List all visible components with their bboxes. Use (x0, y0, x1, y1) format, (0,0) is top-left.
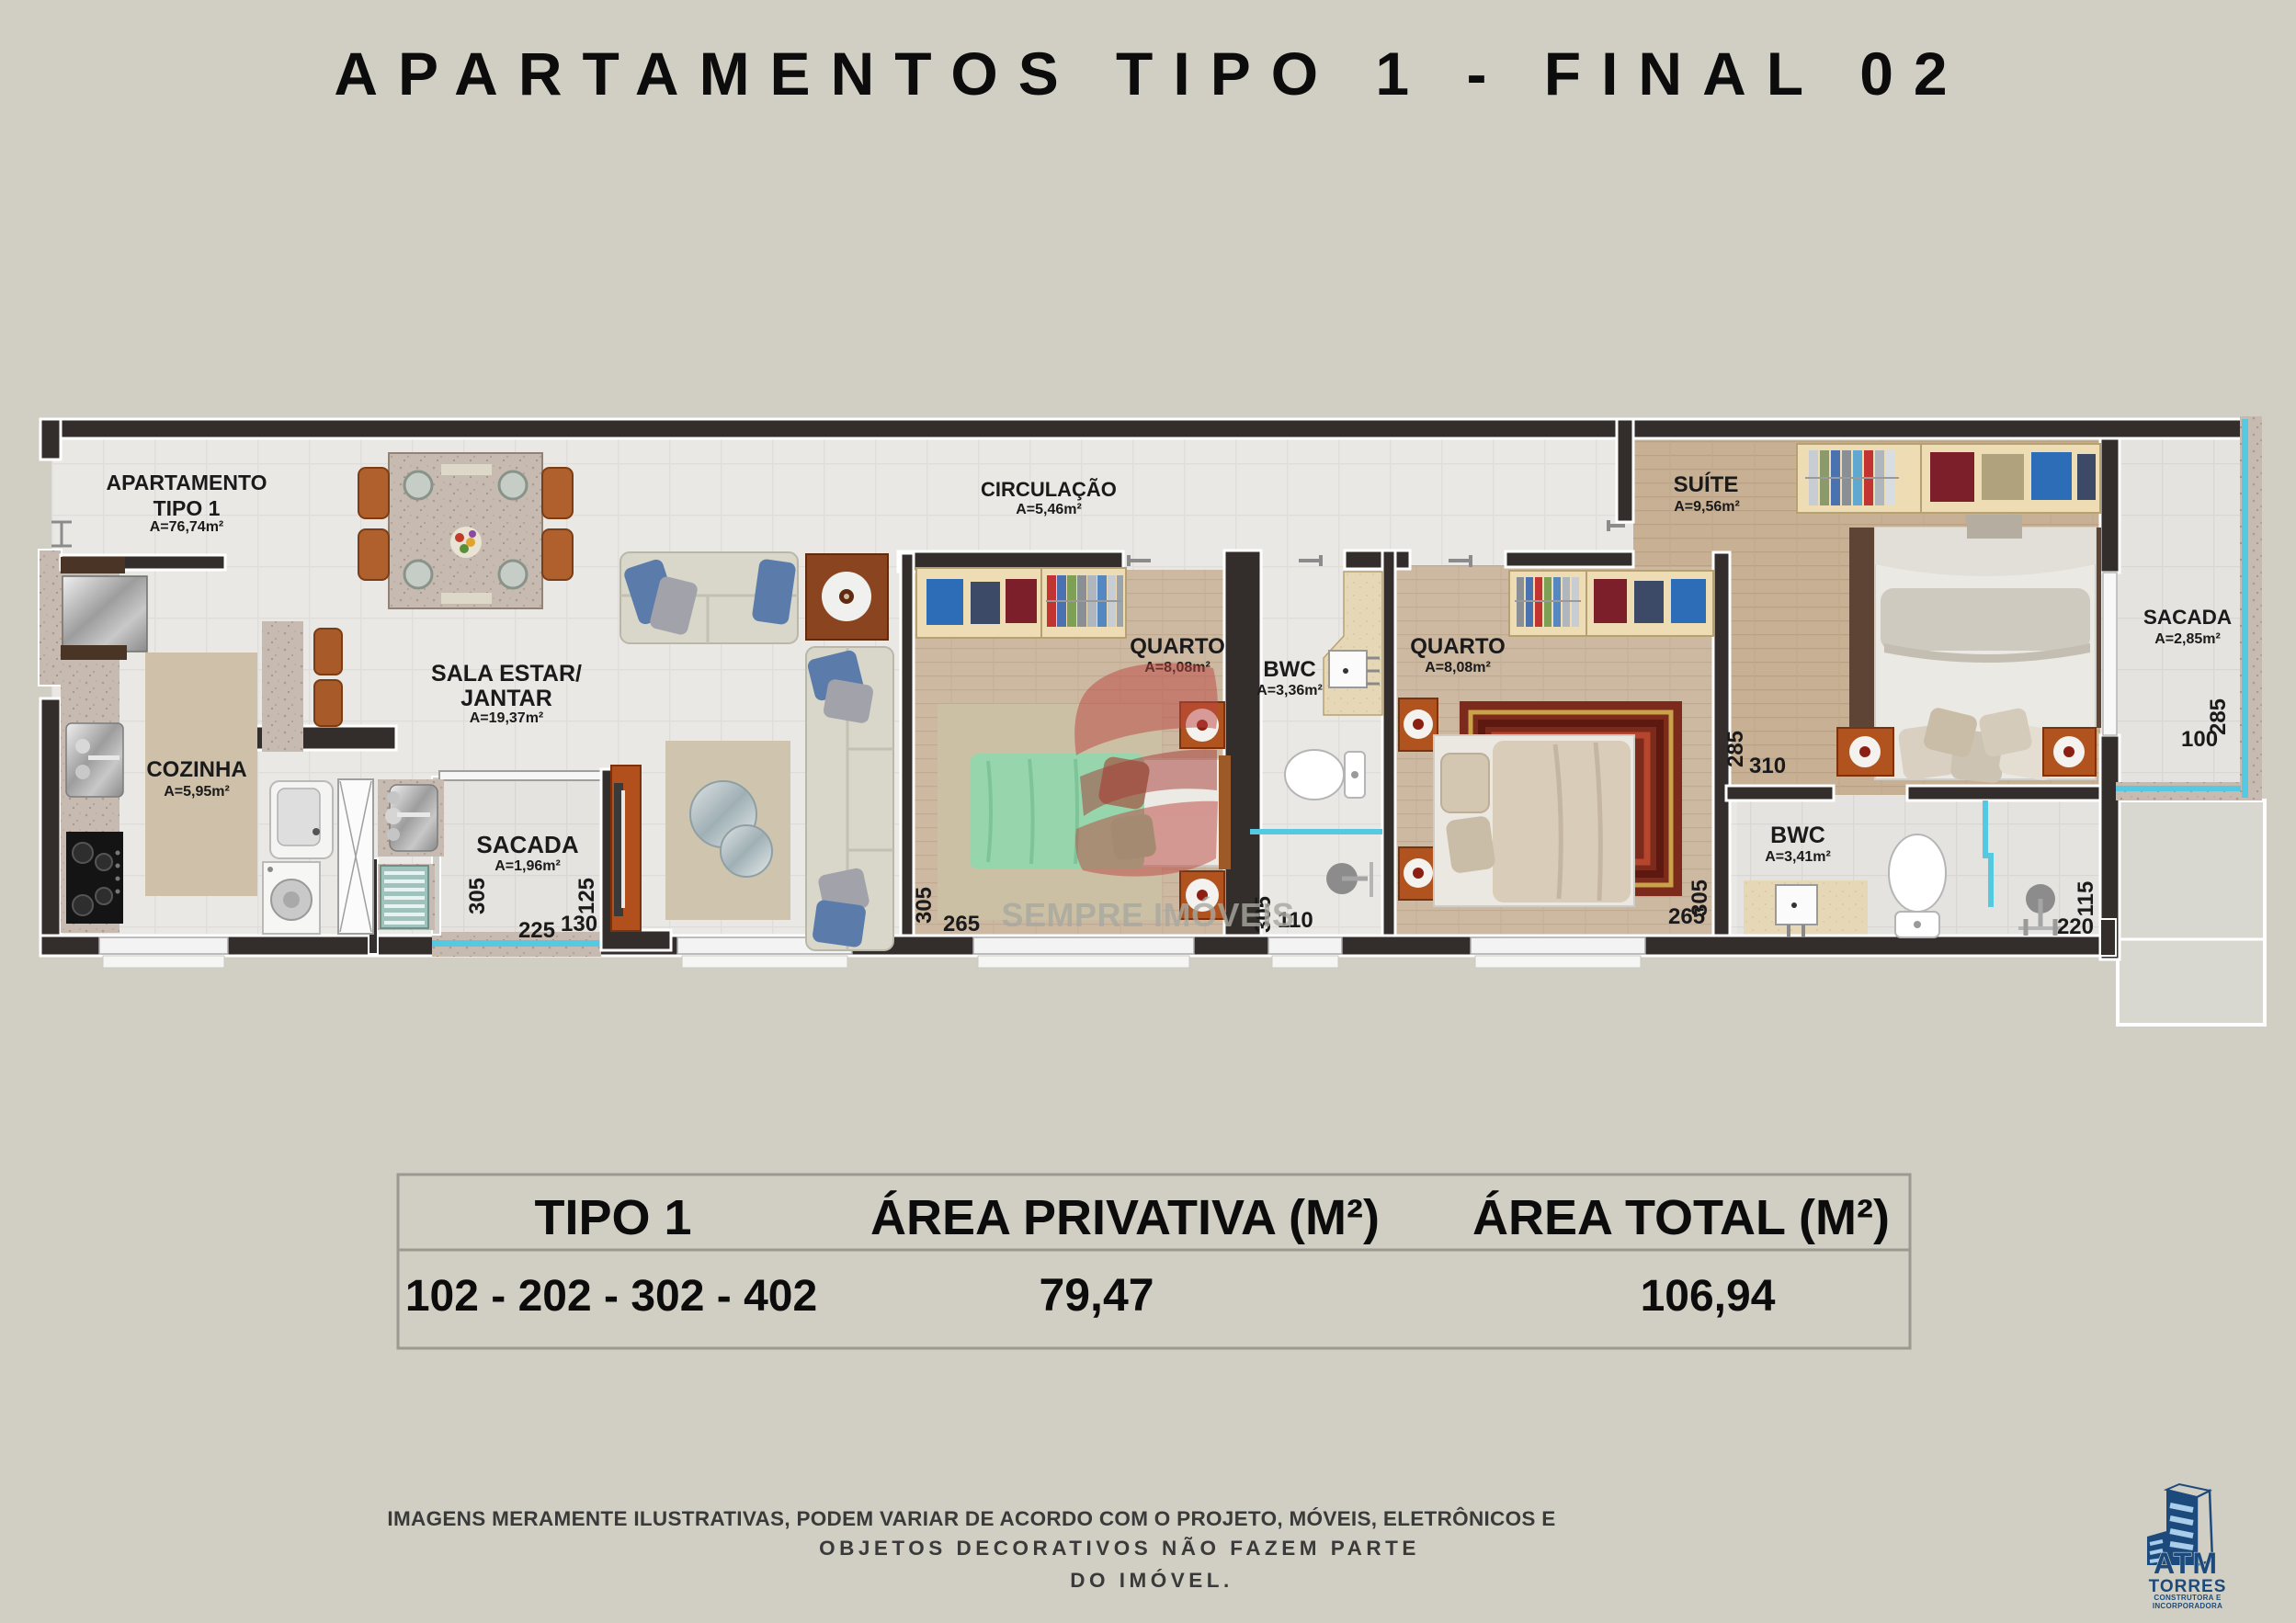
svg-text:BWC: BWC (1770, 823, 1825, 848)
svg-text:SALA ESTAR/: SALA ESTAR/ (431, 661, 582, 687)
svg-text:APARTAMENTOS TIPO 1 - FINAL 02: APARTAMENTOS TIPO 1 - FINAL 02 (334, 40, 1967, 108)
svg-text:102 - 202 - 302 - 402: 102 - 202 - 302 - 402 (405, 1272, 817, 1321)
svg-text:220: 220 (2057, 914, 2094, 939)
svg-text:INCORPORADORA: INCORPORADORA (2153, 1602, 2222, 1610)
svg-text:CONSTRUTORA E: CONSTRUTORA E (2154, 1594, 2222, 1602)
svg-text:QUARTO: QUARTO (1410, 634, 1506, 659)
svg-text:CIRCULAÇÃO: CIRCULAÇÃO (981, 478, 1117, 501)
svg-text:JANTAR: JANTAR (460, 686, 552, 711)
svg-text:SUÍTE: SUÍTE (1674, 471, 1739, 497)
svg-text:106,94: 106,94 (1641, 1272, 1776, 1321)
svg-text:QUARTO: QUARTO (1130, 634, 1225, 659)
svg-text:IMAGENS MERAMENTE ILUSTRATIVAS: IMAGENS MERAMENTE ILUSTRATIVAS, PODEM VA… (387, 1507, 1555, 1530)
svg-text:A=8,08m²: A=8,08m² (1425, 660, 1491, 675)
svg-text:BWC: BWC (1263, 657, 1315, 682)
svg-text:79,47: 79,47 (1039, 1269, 1154, 1321)
svg-text:310: 310 (1749, 754, 1786, 778)
svg-text:A=5,95m²: A=5,95m² (164, 784, 230, 800)
svg-text:265: 265 (943, 912, 980, 936)
svg-text:A=2,85m²: A=2,85m² (2154, 631, 2221, 647)
svg-text:A=76,74m²: A=76,74m² (150, 519, 224, 535)
svg-text:125: 125 (574, 878, 599, 914)
svg-text:SEMPRE IMÓVEIS: SEMPRE IMÓVEIS (1001, 895, 1294, 934)
svg-text:A=5,46m²: A=5,46m² (1016, 502, 1082, 517)
svg-text:APARTAMENTO: APARTAMENTO (106, 471, 267, 494)
svg-text:ATM: ATM (2154, 1547, 2218, 1580)
svg-text:A=3,41m²: A=3,41m² (1765, 849, 1831, 865)
svg-text:305: 305 (465, 878, 490, 914)
svg-text:265: 265 (1668, 904, 1705, 929)
svg-text:115: 115 (2074, 881, 2098, 917)
svg-text:COZINHA: COZINHA (146, 757, 246, 782)
svg-text:100: 100 (2181, 727, 2218, 752)
svg-text:285: 285 (1723, 731, 1748, 767)
svg-text:ÁREA PRIVATIVA (M²): ÁREA PRIVATIVA (M²) (870, 1190, 1380, 1245)
svg-text:A=9,56m²: A=9,56m² (1674, 499, 1740, 515)
svg-text:SACADA: SACADA (2143, 606, 2232, 629)
svg-text:OBJETOS DECORATIVOS NÃO FAZEM: OBJETOS DECORATIVOS NÃO FAZEM PARTE (819, 1537, 1420, 1560)
svg-text:TIPO 1: TIPO 1 (153, 496, 221, 520)
svg-text:A=1,96m²: A=1,96m² (494, 858, 561, 874)
svg-text:225: 225 (518, 918, 555, 943)
svg-text:TIPO 1: TIPO 1 (534, 1190, 691, 1245)
svg-text:A=19,37m²: A=19,37m² (470, 710, 544, 726)
svg-text:305: 305 (912, 887, 937, 924)
svg-text:SACADA: SACADA (476, 831, 578, 858)
svg-text:A=3,36m²: A=3,36m² (1256, 683, 1323, 698)
svg-text:ÁREA TOTAL (M²): ÁREA TOTAL (M²) (1472, 1190, 1890, 1245)
svg-text:130: 130 (561, 912, 597, 936)
svg-text:DO IMÓVEL.: DO IMÓVEL. (1070, 1569, 1233, 1592)
